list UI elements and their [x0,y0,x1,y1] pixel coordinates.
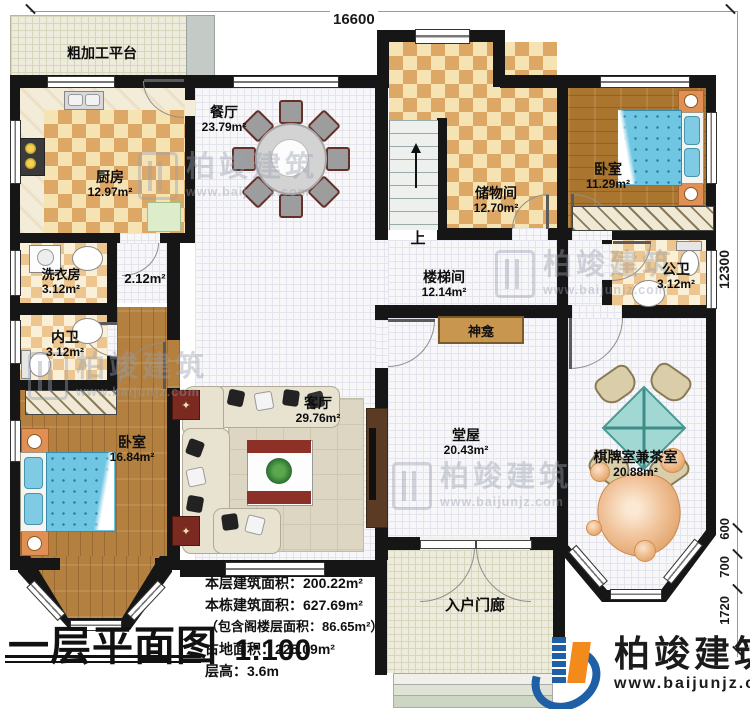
stats-block: 本层建筑面积：200.22m² 本栋建筑面积：627.69m² （包含阁楼层面积… [205,572,380,682]
stove-burner [25,158,36,169]
dining-chair [232,147,256,171]
wall [706,318,716,528]
nightstand-lamp [27,536,42,551]
nightstand-lamp [684,187,698,201]
wall [375,88,388,240]
room-label-storage: 储物间 12.70m² [446,186,546,215]
nightstand-lamp [684,94,698,108]
wall [557,240,568,318]
floor-plan-canvas: 16600 12300 600 700 1720 [0,0,750,709]
washer-drum [37,249,54,266]
window [47,76,115,88]
shrine-label: 神龛 [468,321,494,340]
bed-pillow [24,493,43,525]
window [233,76,339,88]
logo-building-blue [552,637,566,683]
logo-swoosh [520,634,613,709]
room-label-stairwell: 楼梯间 12.14m² [394,270,494,299]
sofa-pillow [186,495,205,514]
bed-pillow [24,457,43,489]
dim-tick [25,4,36,15]
dining-chair [279,100,303,124]
room-label-hallway: 2.12m² [100,272,190,287]
door-opening [375,320,388,368]
wall [155,558,180,570]
logo: 柏竣建筑 www.baijunjz.com [528,633,748,705]
wall [375,305,716,318]
dim-tick [725,4,736,15]
dimension-right-700: 700 [717,556,732,578]
dimension-right-600: 600 [717,518,732,540]
coffee-table-band [247,491,311,504]
tv [369,428,376,500]
window [415,29,470,44]
dining-chair [326,147,350,171]
sofa-pillow [185,466,206,487]
room-label-main-hall: 堂屋 20.43m² [416,428,516,457]
door-opening [512,228,548,240]
kitchen-counter-unit [147,202,181,232]
stat-line: 占地面积：225.09m² [205,638,380,660]
kitchen-sink-bowl [85,94,100,106]
bed-pillow [684,148,700,177]
wardrobe [25,390,117,415]
room-label-bedroom-ne: 卧室 11.29m² [558,162,658,191]
wall [557,75,568,235]
sofa-pillow [221,513,239,531]
platform-gray-band [186,15,215,77]
stairs-arrow-shaft [415,152,417,188]
wall [10,303,117,315]
plant [266,458,292,484]
staircase [389,120,438,230]
dining-chair [279,194,303,218]
door-leaf [613,241,651,244]
room-label-kitchen: 厨房 12.97m² [60,170,160,199]
room-label-platform: 粗加工平台 [40,46,164,62]
stat-line: 层高：3.6m [205,660,380,682]
dimension-line-right [737,11,738,657]
door-opening [167,340,180,388]
wardrobe [572,206,714,231]
dimension-line-top [30,11,737,12]
entry-door-leaf [420,540,476,549]
room-label-private-bath: 内卫 3.12m² [20,330,110,359]
side-table: ✦ [172,390,200,420]
title-underline [5,655,201,658]
stairs-up-label: 上 [406,231,430,248]
side-table: ✦ [172,516,200,546]
window [706,112,717,184]
logo-text: 柏竣建筑 www.baijunjz.com [614,635,750,693]
sofa-pillow [227,389,246,408]
dimension-top-label: 16600 [330,11,378,28]
wall [10,558,60,570]
stairs-arrow-head [411,143,421,153]
room-label-laundry: 洗衣房 3.12m² [16,268,106,296]
wall [557,318,568,550]
room-label-dining: 餐厅 23.79m² [174,105,274,134]
room-label-living: 客厅 29.76m² [268,396,368,425]
room-label-porch: 入户门廊 [420,598,530,615]
kitchen-sink-bowl [68,94,83,106]
dining-table-center [271,139,309,177]
door-leaf [569,318,572,369]
bed-pillow [684,116,700,145]
shrine-cabinet: 神龛 [438,316,524,344]
rug-cushion [634,540,656,562]
stat-line: （包含阁楼层面积：86.65m²） [205,616,380,638]
entry-door-leaf [476,540,532,549]
logo-icon [528,633,608,705]
stat-line: 本栋建筑面积：627.69m² [205,594,380,616]
door-leaf [546,195,549,229]
nightstand-lamp [27,434,42,449]
dimension-right-1720: 1720 [717,596,732,625]
room-label-public-bath: 公卫 3.12m² [626,262,726,291]
door-leaf [144,79,184,82]
door-opening [120,233,160,243]
room-label-chess-tea: 棋牌室兼茶室 20.88m² [563,450,708,479]
logo-company: 柏竣建筑 [614,635,750,673]
door-opening [572,305,622,318]
room-label-bedroom-sw: 卧室 16.84m² [82,435,182,464]
stat-line: 本层建筑面积：200.22m² [205,572,380,594]
title-underline [5,661,201,663]
wall [185,88,195,100]
rug-cushion [586,520,602,536]
logo-website: www.baijunjz.com [614,675,750,693]
wall [10,380,117,390]
bay-window [610,589,662,600]
door-opening [602,244,612,280]
door-leaf [388,319,435,322]
stove-burner [25,143,36,154]
window [600,76,690,88]
coffee-table-band [247,440,311,453]
door-leaf [163,342,166,389]
